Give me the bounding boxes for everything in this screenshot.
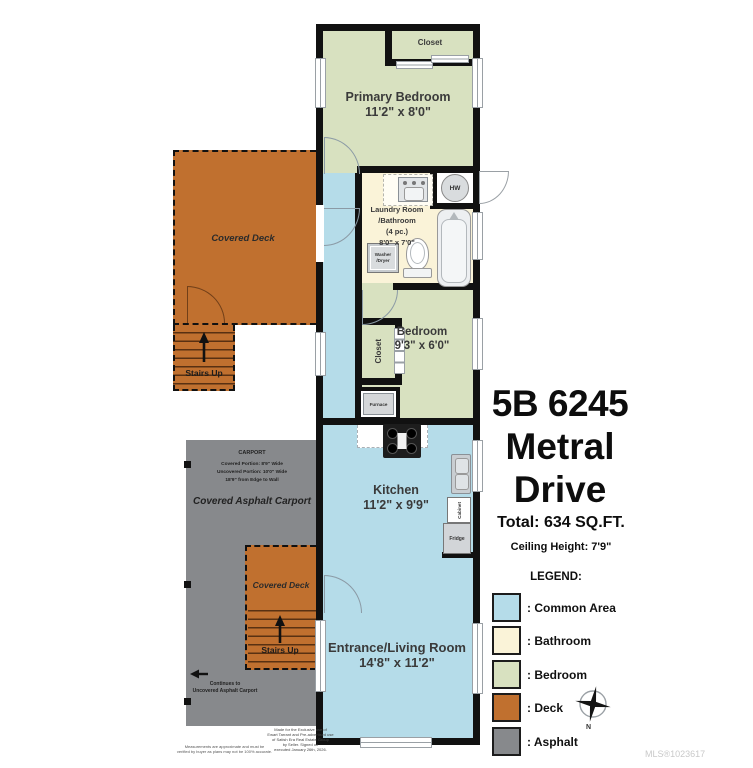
fridge-label: Fridge <box>449 536 464 542</box>
kitchen-label: Kitchen 11'2" x 9'9" <box>363 483 429 513</box>
window <box>315 620 326 692</box>
legend-label-bathroom: : Bathroom <box>527 634 591 648</box>
room-name: Bedroom <box>395 326 450 340</box>
window <box>472 212 483 260</box>
window <box>315 332 326 376</box>
legend-swatch-common-area <box>492 593 521 622</box>
legend-swatch-deck <box>492 693 521 722</box>
legend-swatch-bedroom <box>492 660 521 689</box>
stove <box>383 424 421 458</box>
room-dims: 14'8" x 11'2" <box>328 655 466 670</box>
address-line-2: Metral <box>460 428 660 465</box>
carport-note-3: 18'9" from Edge to Wall <box>225 477 278 485</box>
lower-stairs-label: Stairs Up <box>261 645 298 655</box>
mls-watermark: MLS®1023617 <box>645 749 705 759</box>
window <box>315 58 326 108</box>
wall <box>355 378 402 385</box>
entry-door-opening <box>316 205 324 262</box>
room-dims: 9'3" x 6'0" <box>395 340 450 354</box>
bathtub <box>437 209 471 287</box>
carport-label: Covered Asphalt Carport <box>193 496 311 508</box>
exterior-door-swing <box>479 171 509 204</box>
up-arrow-icon <box>274 615 286 645</box>
furnace-label: Furnace <box>370 402 388 407</box>
carport-note-2: Uncovered Portion: 10'0" Wide <box>217 469 287 477</box>
up-arrow-icon <box>198 332 210 364</box>
compass-north-label: N <box>586 724 591 731</box>
toilet-tank <box>403 268 432 278</box>
address-line-1: 5B 6245 <box>460 385 660 422</box>
legend-swatch-bathroom <box>492 626 521 655</box>
bedroom-label: Bedroom 9'3" x 6'0" <box>395 326 450 353</box>
carport-post <box>184 461 191 468</box>
carport-post <box>184 698 191 705</box>
legend-heading: LEGEND: <box>530 571 582 585</box>
legend-label-common-area: : Common Area <box>527 601 616 615</box>
washer-label-2: /Dryer <box>376 258 389 264</box>
closet-mid-label-box: Closet <box>362 325 395 378</box>
disclaimer-center: Made for the Exclusive use of Ewart Tarr… <box>243 727 358 752</box>
room-dims: 11'2" x 9'9" <box>363 498 429 513</box>
closet-mid-label: Closet <box>374 339 383 363</box>
closet-sliding-door <box>396 61 433 69</box>
window <box>472 318 483 370</box>
room-name: Kitchen <box>363 483 429 498</box>
upper-stairs-label: Stairs Up <box>185 368 222 378</box>
primary-bedroom-label: Primary Bedroom 11'2" x 8'0" <box>346 90 451 120</box>
window <box>360 737 432 748</box>
address-title: 5B 6245 Metral Drive <box>460 385 660 508</box>
shower-head-icon <box>449 212 459 220</box>
carport-heading: CARPORT <box>238 450 265 456</box>
continues-note-1: Continues to <box>210 682 241 688</box>
carport-post <box>184 581 191 588</box>
laundry-label: Laundry Room /Bathroom (4 pc.) 8'0" x 7'… <box>371 205 424 249</box>
total-area: Total: 634 SQ.FT. <box>497 514 625 533</box>
hot-water-tank: HW <box>441 174 469 202</box>
fridge: Fridge <box>443 523 471 554</box>
compass-rose-icon <box>570 685 616 725</box>
continues-note-2: Uncovered Asphalt Carport <box>193 689 258 695</box>
closet-sliding-door <box>431 55 469 63</box>
room-name: Primary Bedroom <box>346 90 451 105</box>
left-arrow-icon <box>190 668 210 680</box>
closet-top-label: Closet <box>418 38 442 47</box>
furnace: Furnace <box>357 387 400 421</box>
lower-deck-label: Covered Deck <box>253 580 310 590</box>
wall <box>357 166 473 173</box>
laundry-line-3: (4 pc.) <box>371 227 424 238</box>
closet-door-gap <box>394 351 405 374</box>
laundry-line-1: Laundry Room <box>371 205 424 216</box>
bathroom-sink <box>398 177 428 202</box>
floor-plan-page: Covered Deck Stairs Up CARPORT Covered P… <box>0 0 753 768</box>
legend-label-bedroom: : Bedroom <box>527 668 587 682</box>
upper-deck-label: Covered Deck <box>211 233 274 244</box>
address-line-3: Drive <box>460 471 660 508</box>
legend-label-deck: : Deck <box>527 701 563 715</box>
room-dims: 11'2" x 8'0" <box>346 105 451 120</box>
room-name: Entrance/Living Room <box>328 640 466 655</box>
carport-note-1: Covered Portion: 8'9" Wide <box>221 461 283 469</box>
ceiling-height: Ceiling Height: 7'9" <box>511 541 612 554</box>
disclaimer-center-5: executed January 26th, 2026. <box>243 747 358 752</box>
laundry-line-4: 8'0" x 7'0" <box>371 238 424 249</box>
legend-swatch-asphalt <box>492 727 521 756</box>
window <box>472 58 483 108</box>
laundry-line-2: /Bathroom <box>371 216 424 227</box>
window <box>472 623 483 694</box>
living-room-label: Entrance/Living Room 14'8" x 11'2" <box>328 640 466 671</box>
legend-label-asphalt: : Asphalt <box>527 735 578 749</box>
hw-label: HW <box>450 185 461 192</box>
